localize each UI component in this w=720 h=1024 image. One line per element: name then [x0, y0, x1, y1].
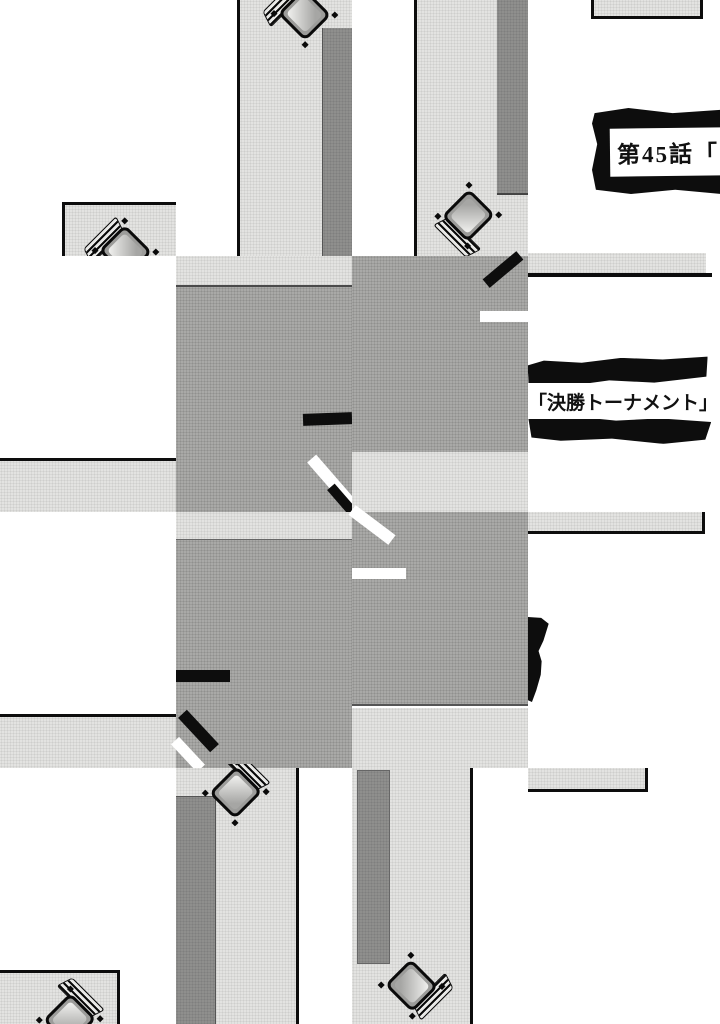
floor-gray-tile: [352, 256, 528, 452]
panel-border-vertical: [470, 768, 473, 1024]
ink-splash: [528, 617, 550, 702]
panel-border-vertical: [645, 768, 648, 792]
floor-box-top-left: [62, 202, 176, 256]
panel-border-horizontal: [528, 273, 712, 277]
white-bar: [480, 311, 528, 322]
title-label-background: 「決勝トーナメント」: [528, 383, 706, 419]
desk-chair-overhead-icon: [24, 973, 115, 1024]
panel-border-horizontal: [528, 789, 648, 792]
tournament-title-box: 「決勝トーナメント」: [524, 354, 720, 450]
chapter-title-text: 第45話「: [610, 134, 719, 169]
floor-band: [352, 708, 528, 768]
rough-ink-band: [528, 415, 712, 445]
desk-clip-region: [176, 764, 296, 826]
floor-band: [0, 717, 176, 768]
floor-band: [528, 768, 646, 789]
floor-band: [176, 512, 352, 539]
floor-band: [176, 256, 352, 285]
floor-band: [528, 253, 706, 273]
dark-block: [357, 770, 390, 964]
dark-block: [322, 28, 352, 256]
manga-page: 第45話「 「決勝トーナメント」: [0, 0, 720, 1024]
tournament-title-text: 「決勝トーナメント」: [528, 388, 718, 415]
dark-block: [176, 796, 216, 1024]
floor-band: [528, 512, 705, 531]
floor-box-top-right: [591, 0, 703, 19]
panel-border-horizontal: [528, 531, 705, 534]
panel-border-vertical: [296, 768, 299, 1024]
desk-chair-overhead-icon: [79, 207, 170, 256]
white-bar: [352, 568, 406, 579]
floor-band: [0, 461, 176, 512]
chapter-title-box: 第45話「: [592, 108, 720, 194]
desk-top-icon: [278, 0, 332, 41]
desk-edge-bar: [176, 670, 230, 682]
floor-gray-tile: [352, 512, 528, 706]
floor-band: [352, 452, 528, 512]
panel-border-vertical: [702, 512, 705, 534]
desk-edge-bar: [303, 412, 352, 426]
desk-chair-overhead-icon: [190, 764, 281, 826]
floor-box-bottom-left: [0, 970, 120, 1024]
dark-block: [497, 0, 528, 195]
title-label-background: 第45話「: [610, 127, 720, 176]
